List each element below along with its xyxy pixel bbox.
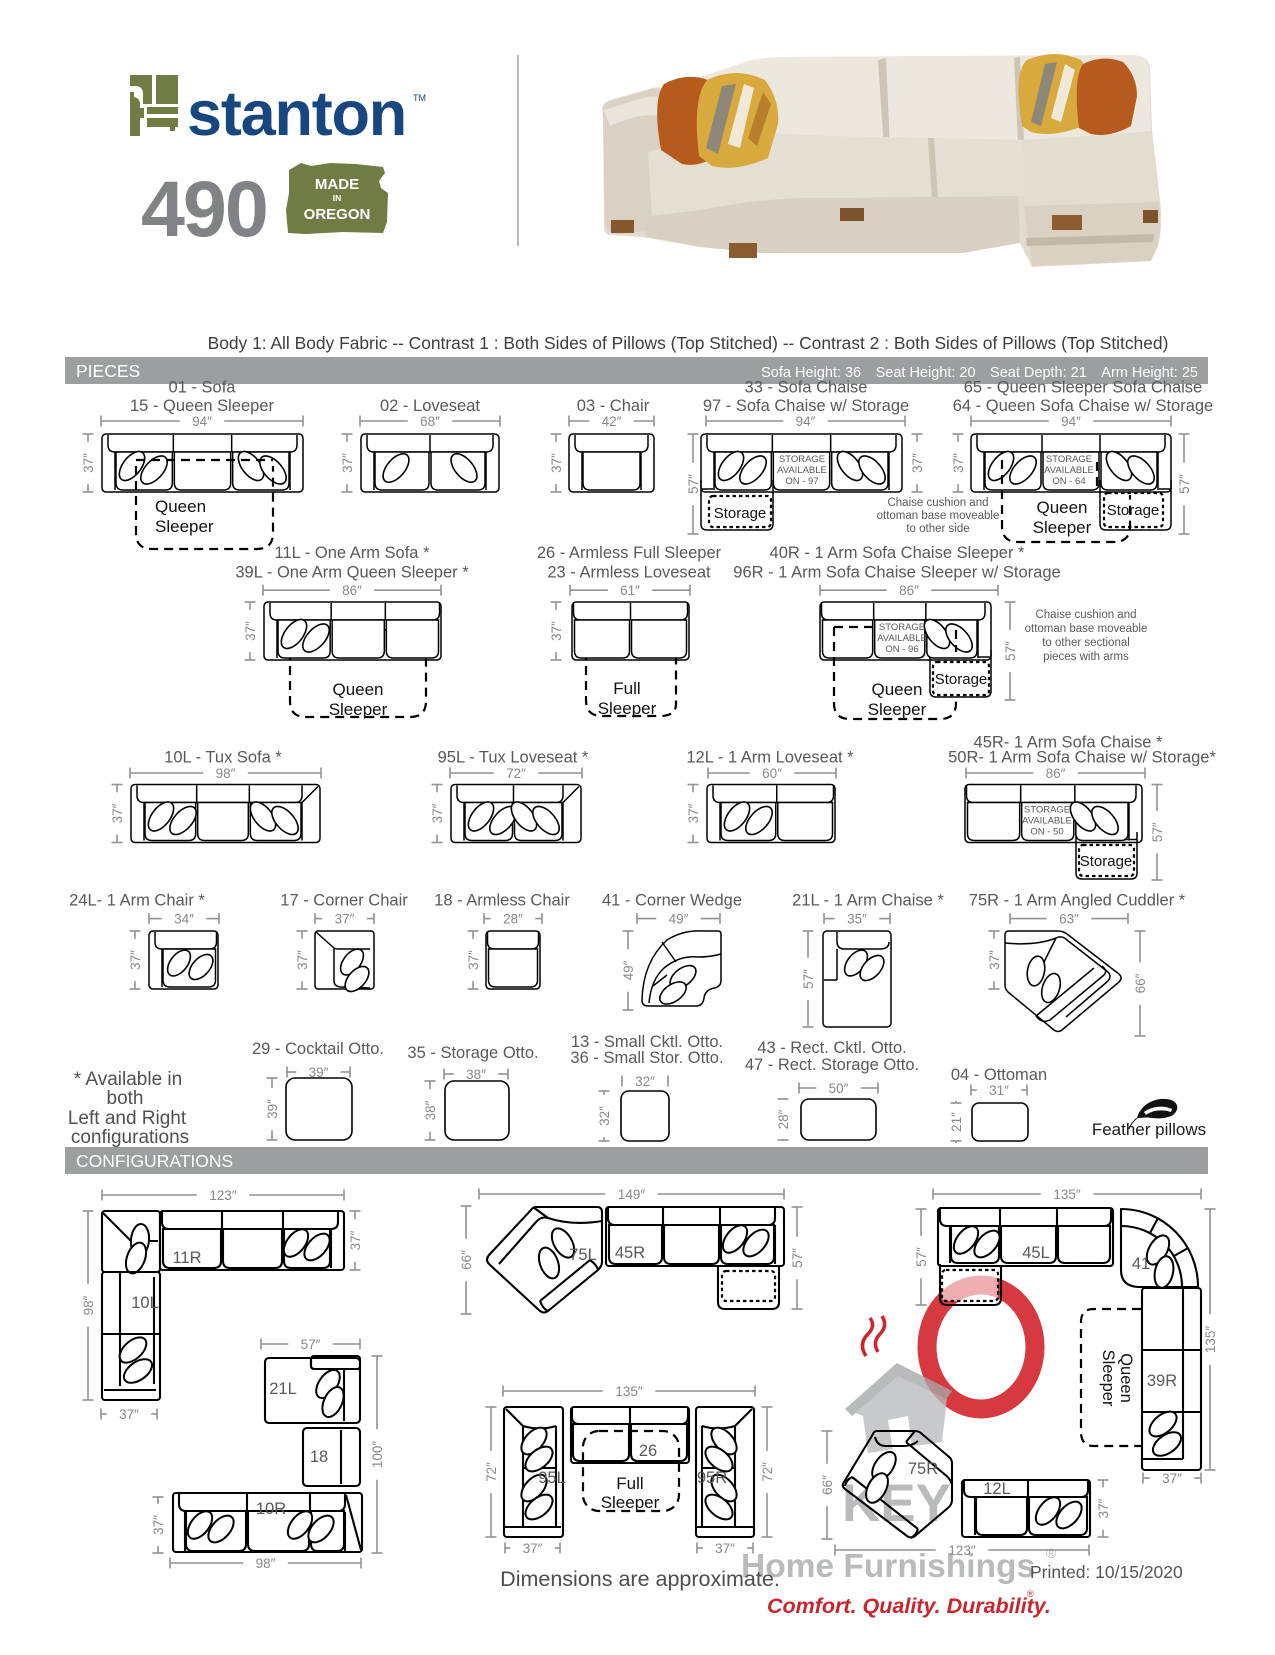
svg-text:38″: 38″: [423, 1100, 438, 1120]
svg-text:Sleeper: Sleeper: [1099, 1350, 1117, 1407]
svg-text:to other side: to other side: [906, 523, 969, 535]
svg-text:17 - Corner Chair: 17 - Corner Chair: [280, 892, 408, 910]
svg-text:95L: 95L: [538, 1469, 566, 1487]
svg-text:37″: 37″: [987, 950, 1002, 970]
svg-text:configurations: configurations: [71, 1127, 189, 1148]
svg-text:135″: 135″: [615, 1384, 643, 1399]
svg-text:64 - Queen Sofa Chaise w/ Stor: 64 - Queen Sofa Chaise w/ Storage: [953, 397, 1214, 415]
svg-text:149″: 149″: [618, 1187, 646, 1202]
svg-text:18: 18: [310, 1448, 328, 1466]
svg-text:ON - 64: ON - 64: [1052, 476, 1085, 487]
svg-text:50R- 1 Arm Sofa Chaise w/ Stor: 50R- 1 Arm Sofa Chaise w/ Storage*: [948, 749, 1216, 767]
svg-text:both: both: [107, 1088, 144, 1109]
svg-text:86″: 86″: [899, 583, 919, 598]
svg-text:Body 1: All Body Fabric -- Con: Body 1: All Body Fabric -- Contrast 1 : …: [208, 333, 1169, 353]
svg-text:123″: 123″: [948, 1543, 976, 1558]
svg-text:21″: 21″: [949, 1112, 964, 1132]
svg-text:96R - 1 Arm Sofa Chaise Sleepe: 96R - 1 Arm Sofa Chaise Sleeper w/ Stora…: [733, 564, 1060, 582]
svg-text:43 - Rect. Cktl. Otto.: 43 - Rect. Cktl. Otto.: [757, 1039, 906, 1057]
svg-text:ON - 96: ON - 96: [885, 644, 918, 655]
svg-text:29 - Cocktail Otto.: 29 - Cocktail Otto.: [252, 1040, 384, 1058]
svg-text:66″: 66″: [459, 1250, 474, 1270]
svg-text:95R: 95R: [697, 1469, 727, 1487]
svg-text:IN: IN: [333, 193, 342, 203]
svg-text:AVAILABLE: AVAILABLE: [877, 633, 927, 644]
svg-text:10L - Tux Sofa *: 10L - Tux Sofa *: [164, 749, 282, 767]
svg-text:STORAGE: STORAGE: [1024, 805, 1070, 816]
svg-text:135″: 135″: [1203, 1326, 1218, 1354]
svg-text:37″: 37″: [151, 1515, 166, 1535]
svg-text:37″: 37″: [686, 803, 701, 823]
svg-text:ottoman base moveable: ottoman base moveable: [1025, 623, 1148, 635]
svg-text:24L- 1 Arm Chair *: 24L- 1 Arm Chair *: [69, 892, 205, 910]
svg-text:60″: 60″: [762, 766, 782, 781]
svg-text:Full: Full: [613, 679, 640, 698]
svg-text:37″: 37″: [1096, 1498, 1111, 1518]
svg-text:Storage: Storage: [935, 671, 988, 688]
svg-text:ON - 97: ON - 97: [785, 476, 818, 487]
svg-text:Chaise cushion and: Chaise cushion and: [887, 497, 988, 509]
svg-text:490: 490: [141, 164, 267, 253]
svg-text:100″: 100″: [370, 1441, 385, 1469]
svg-text:72″: 72″: [760, 1462, 775, 1482]
svg-text:57″: 57″: [1150, 822, 1165, 842]
svg-text:Left and Right: Left and Right: [68, 1108, 187, 1129]
svg-text:37″: 37″: [910, 453, 925, 473]
svg-text:Storage: Storage: [1080, 853, 1133, 870]
svg-text:75R - 1 Arm Angled Cuddler *: 75R - 1 Arm Angled Cuddler *: [969, 892, 1186, 910]
svg-text:CONFIGURATIONS: CONFIGURATIONS: [76, 1151, 233, 1171]
svg-text:95L - Tux Loveseat *: 95L - Tux Loveseat *: [438, 749, 589, 767]
svg-text:37″: 37″: [523, 1541, 543, 1556]
svg-text:Home Furnishings: Home Furnishings: [741, 1548, 1035, 1585]
svg-text:28″: 28″: [776, 1109, 791, 1129]
svg-text:41 - Corner Wedge: 41 - Corner Wedge: [602, 892, 742, 910]
svg-text:37″: 37″: [340, 453, 355, 473]
svg-text:37″: 37″: [81, 453, 96, 473]
svg-text:pieces with arms: pieces with arms: [1043, 651, 1129, 663]
svg-text:94″: 94″: [1061, 414, 1081, 429]
svg-text:37″: 37″: [549, 621, 564, 641]
svg-text:Sleeper: Sleeper: [329, 700, 388, 719]
svg-text:ON - 50: ON - 50: [1030, 827, 1063, 838]
svg-text:123″: 123″: [209, 1188, 237, 1203]
svg-text:STORAGE: STORAGE: [1046, 454, 1092, 465]
svg-text:26 - Armless Full Sleeper: 26 - Armless Full Sleeper: [537, 544, 722, 562]
svg-text:31″: 31″: [989, 1083, 1009, 1098]
svg-text:39L - One Arm Queen Sleeper *: 39L - One Arm Queen Sleeper *: [235, 564, 469, 582]
svg-text:45L: 45L: [1022, 1244, 1050, 1262]
svg-text:OREGON: OREGON: [304, 206, 371, 223]
svg-text:to other sectional: to other sectional: [1042, 637, 1130, 649]
svg-text:50″: 50″: [829, 1081, 849, 1096]
svg-text:86″: 86″: [1046, 766, 1066, 781]
svg-text:15 - Queen Sleeper: 15 - Queen Sleeper: [130, 397, 275, 415]
svg-text:Storage: Storage: [714, 505, 767, 522]
svg-text:135″: 135″: [1053, 1187, 1081, 1202]
svg-text:12L: 12L: [983, 1480, 1011, 1498]
svg-text:41: 41: [1132, 1255, 1150, 1273]
svg-text:28″: 28″: [503, 911, 523, 926]
svg-text:37″: 37″: [951, 453, 966, 473]
svg-text:MADE: MADE: [315, 176, 359, 193]
svg-text:®: ®: [1046, 1545, 1057, 1561]
svg-text:32″: 32″: [635, 1074, 655, 1089]
svg-text:57″: 57″: [686, 474, 701, 494]
svg-text:ottoman base moveable: ottoman base moveable: [877, 510, 1000, 522]
svg-text:37″: 37″: [110, 803, 125, 823]
svg-text:34″: 34″: [174, 911, 194, 926]
svg-text:86″: 86″: [342, 583, 362, 598]
svg-text:63″: 63″: [1059, 911, 1079, 926]
svg-text:Full: Full: [616, 1474, 643, 1493]
svg-text:Queen: Queen: [1036, 498, 1087, 517]
svg-text:49″: 49″: [621, 960, 636, 980]
svg-text:61″: 61″: [620, 583, 640, 598]
svg-text:57″: 57″: [1177, 474, 1192, 494]
svg-text:66″: 66″: [1133, 973, 1148, 993]
svg-text:98″: 98″: [81, 1295, 96, 1315]
svg-text:03 - Chair: 03 - Chair: [577, 397, 650, 415]
svg-text:57″: 57″: [301, 1337, 321, 1352]
svg-text:TM: TM: [413, 93, 426, 103]
svg-text:57″: 57″: [801, 969, 816, 989]
svg-text:10L: 10L: [131, 1294, 159, 1312]
svg-text:94″: 94″: [192, 414, 212, 429]
svg-text:45R: 45R: [615, 1244, 645, 1262]
svg-text:21L - 1 Arm Chaise *: 21L - 1 Arm Chaise *: [792, 892, 944, 910]
svg-text:Dimensions are approximate.: Dimensions are approximate.: [500, 1567, 780, 1591]
svg-text:18 - Armless Chair: 18 - Armless Chair: [434, 892, 570, 910]
svg-text:STORAGE: STORAGE: [779, 454, 825, 465]
svg-text:98″: 98″: [256, 1556, 276, 1571]
svg-text:11R: 11R: [172, 1249, 201, 1267]
svg-text:AVAILABLE: AVAILABLE: [777, 465, 827, 476]
svg-text:37″: 37″: [466, 950, 481, 970]
svg-text:98″: 98″: [216, 766, 236, 781]
svg-text:35 - Storage Otto.: 35 - Storage Otto.: [407, 1044, 538, 1062]
svg-text:33 - Sofa Chaise: 33 - Sofa Chaise: [745, 379, 868, 397]
svg-text:01 - Sofa: 01 - Sofa: [169, 379, 237, 397]
svg-text:57″: 57″: [1003, 641, 1018, 661]
svg-text:37″: 37″: [335, 911, 355, 926]
svg-text:Comfort. Quality. Durability.: Comfort. Quality. Durability.: [767, 1594, 1051, 1618]
svg-text:23 - Armless Loveseat: 23 - Armless Loveseat: [547, 564, 711, 582]
svg-text:12L - 1 Arm Loveseat *: 12L - 1 Arm Loveseat *: [686, 749, 854, 767]
svg-text:* Available in: * Available in: [74, 1069, 182, 1090]
svg-text:35″: 35″: [847, 911, 867, 926]
svg-text:37″: 37″: [348, 1230, 363, 1250]
svg-text:04 - Ottoman: 04 - Ottoman: [951, 1066, 1047, 1084]
svg-text:®: ®: [1027, 1589, 1034, 1599]
svg-text:38″: 38″: [466, 1067, 486, 1082]
svg-text:STORAGE: STORAGE: [879, 622, 925, 633]
svg-text:42″: 42″: [602, 414, 622, 429]
svg-text:Printed: 10/15/2020: Printed: 10/15/2020: [1030, 1562, 1183, 1582]
svg-text:Sleeper: Sleeper: [155, 517, 214, 536]
svg-text:26: 26: [639, 1442, 657, 1460]
svg-text:72″: 72″: [484, 1462, 499, 1482]
svg-text:37″: 37″: [295, 950, 310, 970]
svg-text:49″: 49″: [669, 911, 689, 926]
svg-text:11L - One Arm Sofa *: 11L - One Arm Sofa *: [275, 544, 431, 562]
svg-text:32″: 32″: [597, 1106, 612, 1126]
svg-text:02 - Loveseat: 02 - Loveseat: [380, 397, 480, 415]
svg-text:10R: 10R: [256, 1500, 286, 1518]
svg-text:75R: 75R: [908, 1460, 938, 1478]
svg-text:65 - Queen Sleeper Sofa Chais: 65 - Queen Sleeper Sofa Chaise: [964, 379, 1203, 397]
svg-text:37″: 37″: [243, 621, 258, 641]
svg-text:Sleeper: Sleeper: [601, 1493, 660, 1512]
svg-text:AVAILABLE: AVAILABLE: [1022, 816, 1072, 827]
svg-text:37″: 37″: [1162, 1471, 1182, 1486]
svg-text:Sleeper: Sleeper: [1033, 518, 1092, 537]
svg-text:AVAILABLE: AVAILABLE: [1044, 465, 1094, 476]
svg-text:Feather pillows: Feather pillows: [1092, 1120, 1206, 1139]
svg-text:57″: 57″: [914, 1247, 929, 1267]
svg-text:Queen: Queen: [871, 680, 922, 699]
svg-text:39″: 39″: [265, 1099, 280, 1119]
svg-text:PIECES: PIECES: [76, 361, 140, 381]
svg-text:stanton: stanton: [187, 79, 406, 149]
svg-text:Queen: Queen: [332, 680, 383, 699]
svg-text:Queen: Queen: [1117, 1353, 1135, 1403]
svg-text:97 - Sofa Chaise w/ Storage: 97 - Sofa Chaise w/ Storage: [703, 397, 909, 415]
svg-text:Storage: Storage: [1107, 502, 1160, 519]
svg-text:75L: 75L: [569, 1246, 597, 1264]
svg-text:Sleeper: Sleeper: [598, 699, 657, 718]
svg-text:94″: 94″: [796, 414, 816, 429]
svg-text:37″: 37″: [430, 803, 445, 823]
svg-text:Sleeper: Sleeper: [868, 700, 927, 719]
svg-text:36 - Small Stor. Otto.: 36 - Small Stor. Otto.: [570, 1049, 723, 1067]
svg-text:47 - Rect. Storage Otto.: 47 - Rect. Storage Otto.: [745, 1056, 919, 1074]
svg-text:Chaise cushion and: Chaise cushion and: [1035, 609, 1136, 621]
svg-text:37″: 37″: [715, 1541, 735, 1556]
svg-text:66″: 66″: [820, 1475, 835, 1495]
svg-text:40R - 1 Arm Sofa Chaise Sleepe: 40R - 1 Arm Sofa Chaise Sleeper *: [770, 544, 1026, 562]
svg-text:Queen: Queen: [155, 497, 206, 516]
svg-text:37″: 37″: [549, 453, 564, 473]
svg-text:37″: 37″: [128, 950, 143, 970]
svg-text:72″: 72″: [506, 766, 526, 781]
svg-text:21L: 21L: [269, 1380, 297, 1398]
svg-text:57″: 57″: [790, 1248, 805, 1268]
svg-text:37″: 37″: [119, 1407, 139, 1422]
svg-text:68″: 68″: [420, 414, 440, 429]
svg-text:39R: 39R: [1147, 1372, 1177, 1390]
